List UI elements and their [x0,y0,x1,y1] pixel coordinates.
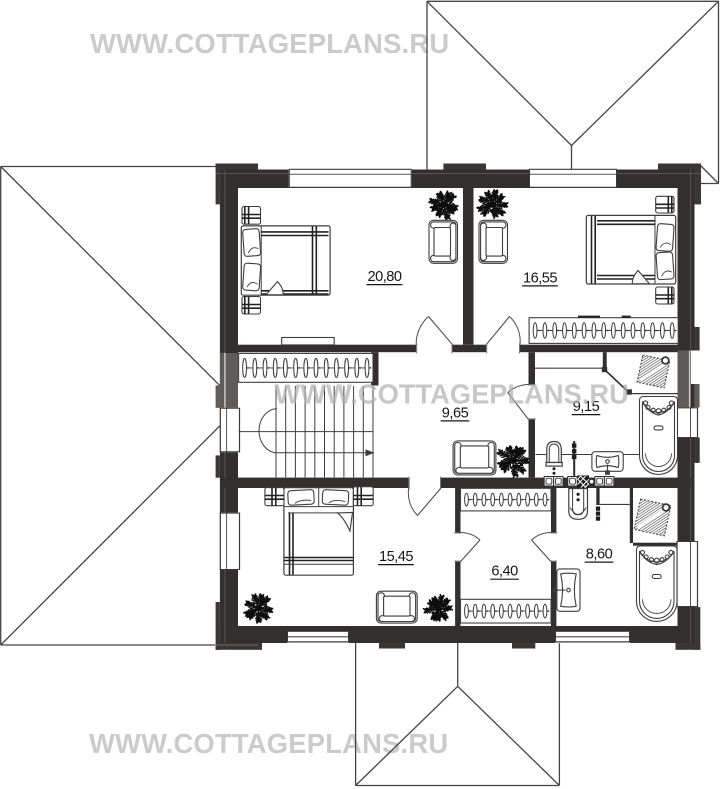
svg-text:16,55: 16,55 [523,270,557,286]
svg-text:15,45: 15,45 [379,549,413,565]
svg-text:8,60: 8,60 [586,547,613,563]
svg-text:20,80: 20,80 [367,269,401,285]
svg-text:WWW.COTTAGEPLANS.RU: WWW.COTTAGEPLANS.RU [90,28,449,59]
svg-text:6,40: 6,40 [491,564,518,580]
svg-text:WWW.COTTAGEPLANS.RU: WWW.COTTAGEPLANS.RU [89,728,448,759]
svg-text:WWW.COTTAGEPLANS.RU: WWW.COTTAGEPLANS.RU [275,378,629,409]
